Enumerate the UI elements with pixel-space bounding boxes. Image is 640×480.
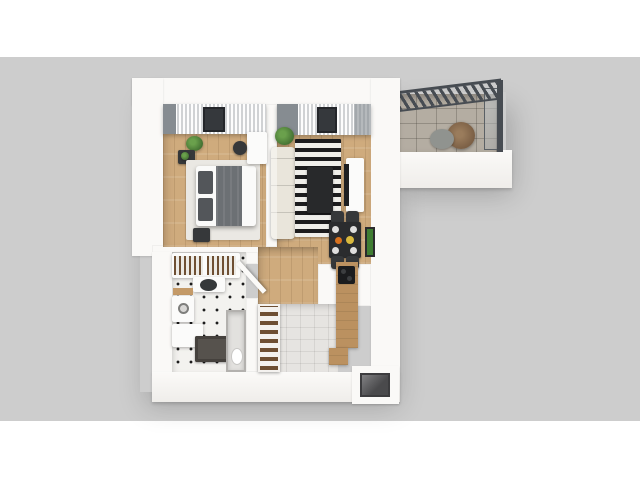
sofa — [271, 147, 295, 239]
tv — [344, 164, 349, 206]
wall-art — [365, 227, 375, 257]
wall-bathroom-left — [152, 252, 172, 374]
wall-bathroom-right-top — [246, 252, 258, 264]
bath-wood-shelf — [173, 288, 193, 295]
desk-chair — [233, 141, 247, 155]
burner — [347, 276, 352, 281]
nightstand-bottom — [193, 228, 210, 242]
balcony-lower-slab — [388, 150, 512, 188]
bedroom-corner-plant — [186, 136, 203, 151]
washbasin — [200, 279, 217, 291]
pillow — [198, 198, 213, 221]
background-top-band — [0, 0, 640, 57]
blind-panel — [354, 104, 371, 135]
cooktop — [338, 266, 355, 284]
coffee-table — [307, 167, 333, 213]
shower-cabin — [226, 310, 246, 372]
dining-table — [329, 222, 361, 258]
chair-blanket — [430, 129, 454, 149]
wall-top — [132, 78, 400, 105]
toilet — [231, 348, 243, 365]
background-bottom-band — [0, 421, 640, 480]
wall-left — [132, 78, 163, 256]
plate — [350, 226, 357, 233]
hanging-clothes — [174, 256, 203, 275]
dish-orange — [335, 237, 342, 244]
hanging-clothes — [207, 256, 236, 275]
washer-door — [178, 303, 189, 314]
bedroom-window-glass — [203, 107, 225, 132]
kitchen-wood-shelf — [329, 348, 348, 365]
bedroom-desk — [247, 132, 267, 164]
washing-machine — [172, 296, 194, 322]
vent-shaft-opening — [360, 373, 390, 397]
plate — [350, 247, 357, 254]
plate — [332, 247, 339, 254]
bed-blanket — [216, 166, 242, 226]
hallway-floor — [258, 247, 318, 304]
nightstand-plant — [181, 152, 189, 160]
tall-storage-shelf — [258, 304, 280, 372]
burner — [341, 269, 346, 274]
wall-bathroom-right-bottom — [246, 298, 258, 372]
pillow — [198, 171, 213, 194]
floor-plan-render — [0, 0, 640, 480]
dish-yellow — [346, 236, 354, 244]
wall-right — [371, 78, 400, 374]
bedroom-window-blinds — [163, 104, 266, 134]
sofa-plant — [275, 127, 294, 145]
living-window-glass — [317, 107, 337, 133]
plate — [332, 226, 339, 233]
blind-panel — [163, 104, 176, 134]
double-bed — [196, 166, 256, 226]
wardrobe — [172, 253, 240, 278]
balcony-corner-post — [497, 80, 503, 152]
